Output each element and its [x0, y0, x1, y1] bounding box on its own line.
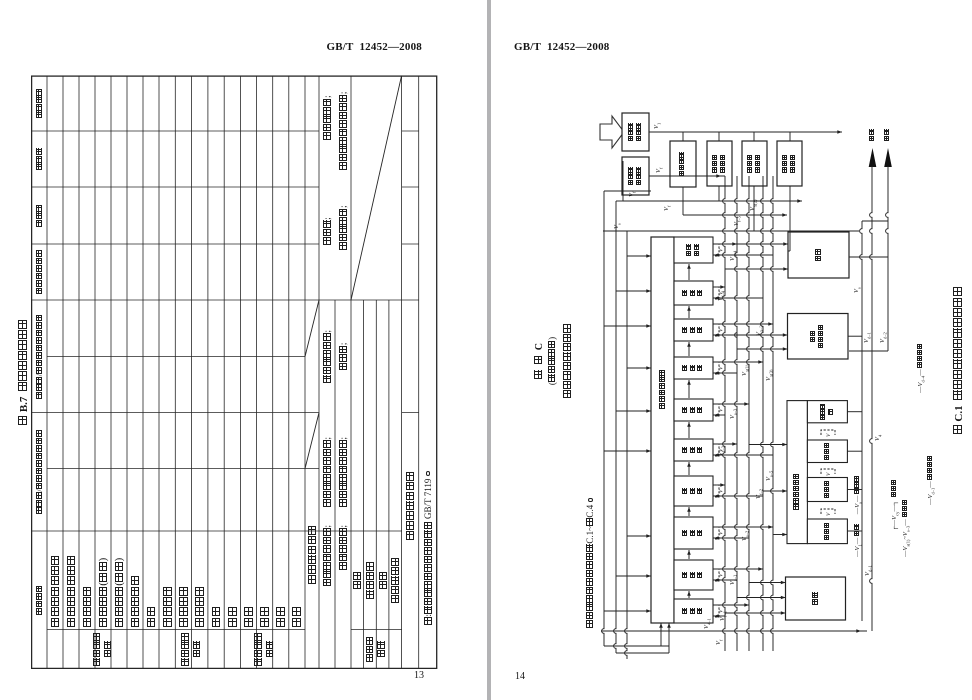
svg-text:V: V — [718, 573, 724, 577]
svg-text:V: V — [826, 512, 832, 516]
svg-text:V: V — [718, 408, 724, 412]
svg-text:V: V — [718, 328, 724, 332]
svg-text:V: V — [826, 433, 832, 437]
svg-text:V: V — [718, 489, 724, 493]
svg-text:V: V — [718, 366, 724, 370]
svg-text:V: V — [826, 472, 832, 476]
svg-text:V: V — [718, 248, 724, 252]
svg-text:V: V — [718, 531, 724, 535]
